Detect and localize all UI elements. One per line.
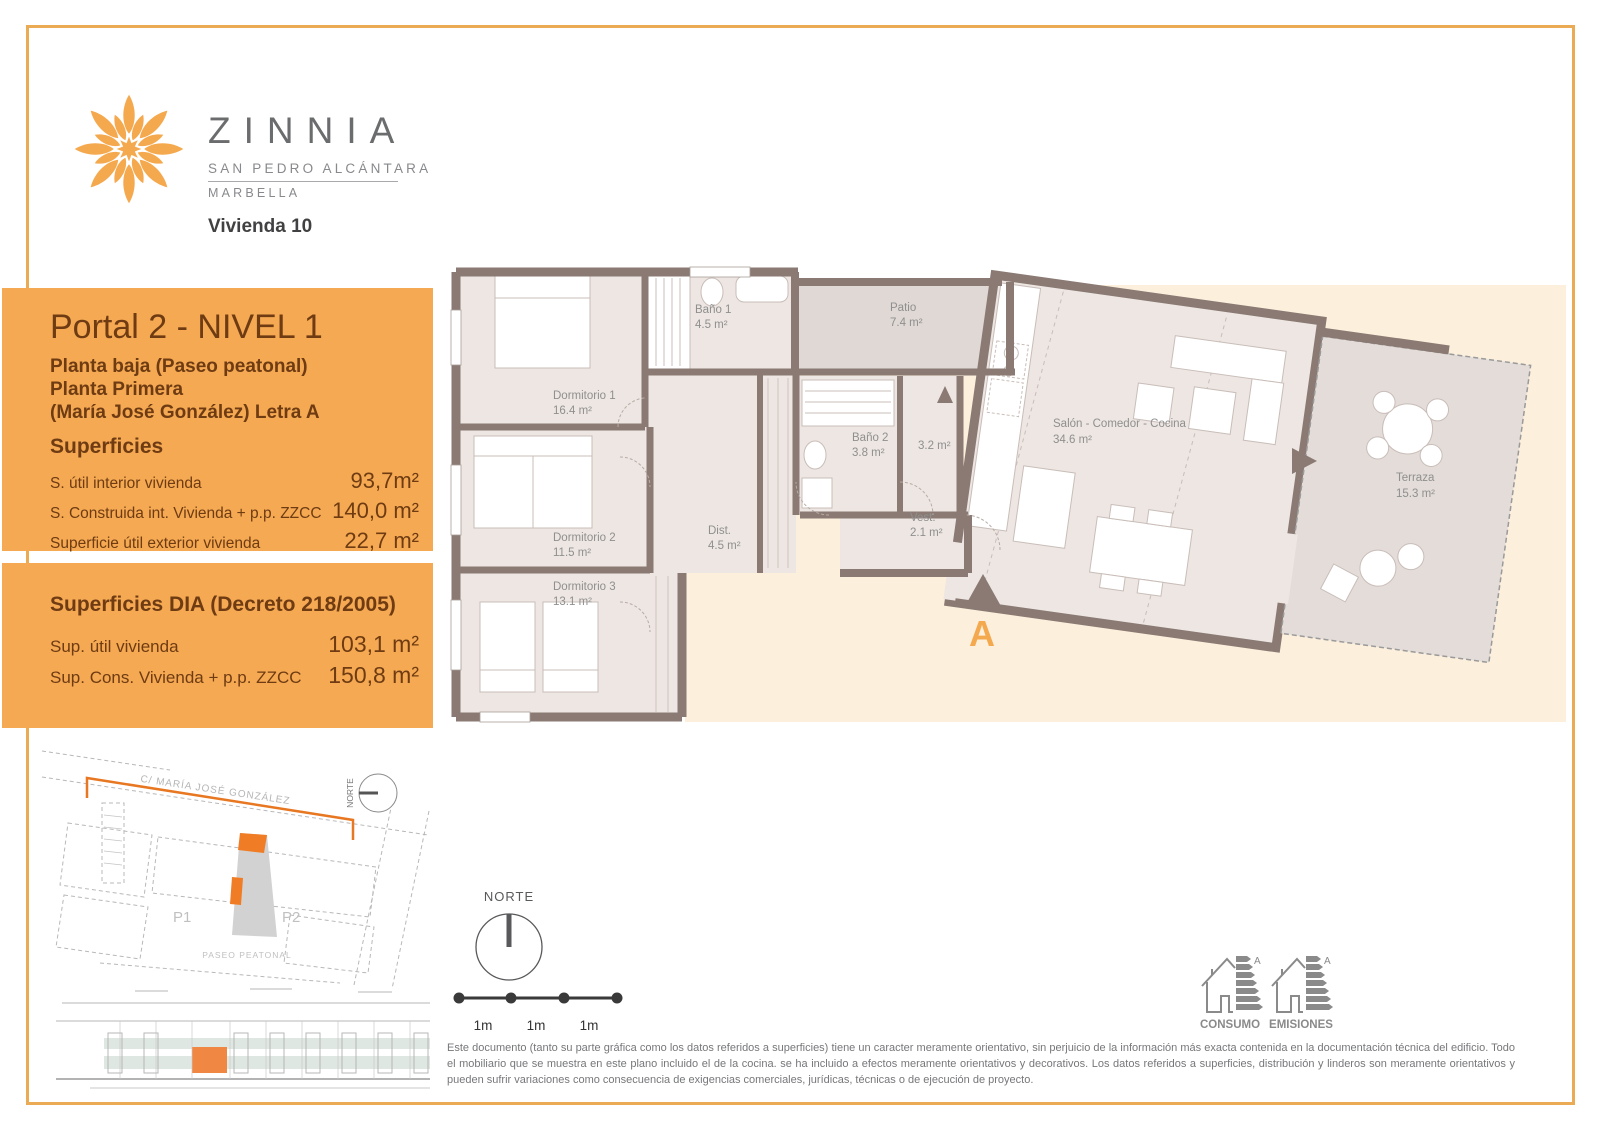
energy-ratings: A A CONSUMO EMISIONES [1193,942,1363,1034]
room-label-dormitorio-1: Dormitorio 1 [553,390,616,402]
surface-row: Sup. Cons. Vivienda + p.p. ZZCC 150,8 m² [50,662,419,689]
brand-location: SAN PEDRO ALCÁNTARA [208,161,431,176]
surface-value: 103,1 m² [328,631,419,658]
brand-city: MARBELLA [208,186,431,200]
room-label-dormitorio-2: Dormitorio 2 [553,532,616,544]
svg-text:16.4 m²: 16.4 m² [553,405,592,417]
site-plan: C/ MARÍA JOSÉ GONZÁLEZ P1 P2 PASEO PEATO… [40,745,430,1105]
surface-label: Sup. Cons. Vivienda + p.p. ZZCC [50,668,302,688]
brand-block: ZINNIA SAN PEDRO ALCÁNTARA MARBELLA Vivi… [70,88,431,238]
room-label-bano-1: Baño 1 [695,304,731,316]
room-label-dist: Dist. [708,525,731,537]
room-label-patio: Patio [890,302,916,314]
surface-value: 93,7m² [351,468,419,494]
svg-text:4.5 m²: 4.5 m² [708,540,741,552]
room-label-3-2: 3.2 m² [918,440,951,452]
portal-2-label: P2 [282,909,300,926]
highlighted-unit-mid [230,877,243,905]
scale-segment-label: 1m [527,1018,546,1033]
svg-text:3.8 m²: 3.8 m² [852,447,885,459]
consumo-label: CONSUMO [1200,1019,1260,1031]
disclaimer-text: Este documento (tanto su parte gráfica c… [447,1040,1515,1088]
svg-text:15.3 m²: 15.3 m² [1396,488,1435,500]
dia-panel: Superficies DIA (Decreto 218/2005) Sup. … [2,563,433,728]
brand-divider [208,181,398,182]
surface-label: Sup. útil vivienda [50,637,179,657]
svg-text:7.4 m²: 7.4 m² [890,317,923,329]
floor-plan: A Dormitorio 1 16.4 m² Baño 1 4.5 m² Pat… [440,250,1575,735]
svg-text:34.6 m²: 34.6 m² [1053,434,1092,446]
surface-row: S. útil interior vivienda 93,7m² [50,468,419,494]
svg-text:4.5 m²: 4.5 m² [695,319,728,331]
surface-label: S. Construida int. Vivienda + p.p. ZZCC [50,505,322,523]
elevation-highlighted-unit [192,1047,227,1073]
plan-line-1: Planta baja (Paseo peatonal) [50,356,419,379]
room-label-vest: Vest. [910,512,936,524]
brand-name: ZINNIA [208,110,431,152]
site-north-label: NORTE [345,778,355,808]
scale-segment-label: 1m [580,1018,599,1033]
surface-value: 150,8 m² [328,662,419,689]
compass-label: NORTE [484,889,534,904]
superficies-heading: Superficies [50,435,419,459]
emisiones-label: EMISIONES [1269,1019,1333,1031]
room-label-terraza: Terraza [1396,472,1435,484]
svg-text:11.5 m²: 11.5 m² [553,547,591,559]
info-panel: Portal 2 - NIVEL 1 Planta baja (Paseo pe… [2,288,433,551]
zinnia-flower-logo-icon [70,88,188,210]
surface-label: Superficie útil exterior vivienda [50,535,260,553]
surface-value: 22,7 m² [344,528,419,554]
dia-heading: Superficies DIA (Decreto 218/2005) [50,593,419,617]
emisiones-rating-letter: A [1324,956,1331,967]
unit-title: Vivienda 10 [208,216,431,238]
room-label-bano-2: Baño 2 [852,432,888,444]
surface-row: Sup. útil vivienda 103,1 m² [50,631,419,658]
surface-label: S. útil interior vivienda [50,475,202,493]
entrance-letter: A [969,613,995,654]
scale-segment-label: 1m [474,1018,493,1033]
north-compass: NORTE [448,885,572,995]
surface-row: Superficie útil exterior vivienda 22,7 m… [50,528,419,554]
svg-text:13.1 m²: 13.1 m² [553,596,592,608]
surface-value: 140,0 m² [332,498,419,524]
plan-line-2: Planta Primera [50,379,419,402]
consumo-rating-letter: A [1254,956,1261,967]
svg-text:2.1 m²: 2.1 m² [910,527,943,539]
room-label-dormitorio-3: Dormitorio 3 [553,581,616,593]
portal-level-title: Portal 2 - NIVEL 1 [50,308,419,347]
scale-bar: 1m 1m 1m [450,988,635,1036]
paseo-label: PASEO PEATONAL [202,950,292,960]
plan-line-3: (María José González) Letra A [50,402,419,425]
building-elevation [56,989,430,1088]
room-label-salon: Salón - Comedor - Cocina [1053,418,1187,430]
portal-1-label: P1 [173,909,191,926]
highlighted-unit-top [238,833,267,853]
surface-row: S. Construida int. Vivienda + p.p. ZZCC … [50,498,419,524]
